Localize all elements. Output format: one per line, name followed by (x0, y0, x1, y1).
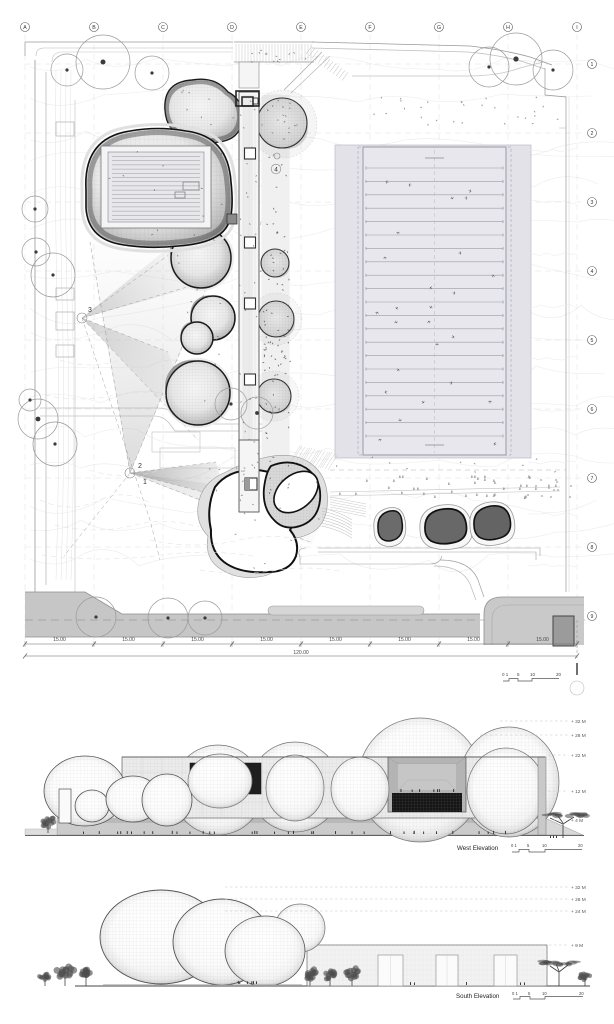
svg-text:15.00: 15.00 (122, 637, 135, 643)
svg-text:+ 28 M: + 28 M (571, 897, 586, 903)
svg-text:10: 10 (530, 672, 536, 677)
svg-text:4: 4 (274, 167, 278, 174)
svg-text:20: 20 (556, 672, 562, 677)
svg-text:5: 5 (591, 338, 594, 344)
svg-text:+ 22 M: + 22 M (571, 753, 586, 759)
svg-text:20: 20 (579, 991, 584, 996)
svg-text:0 1: 0 1 (512, 991, 518, 996)
svg-text:F: F (368, 25, 371, 31)
svg-text:C: C (161, 25, 165, 31)
svg-text:2: 2 (138, 463, 142, 470)
svg-text:South Elevation: South Elevation (456, 993, 500, 1000)
svg-text:B: B (92, 25, 96, 31)
svg-text:I: I (576, 25, 577, 31)
svg-text:+ 28 M: + 28 M (571, 733, 586, 739)
svg-text:+ 12 M: + 12 M (571, 789, 586, 795)
svg-text:10: 10 (542, 991, 547, 996)
svg-text:1: 1 (143, 479, 147, 486)
svg-text:+ 32 M: + 32 M (571, 885, 586, 891)
svg-text:+ 24 M: + 24 M (571, 909, 586, 915)
svg-text:120.00: 120.00 (293, 650, 309, 656)
svg-text:15.00: 15.00 (467, 637, 480, 643)
svg-text:15.00: 15.00 (536, 637, 549, 643)
svg-text:15.00: 15.00 (53, 637, 66, 643)
svg-text:0 1: 0 1 (511, 843, 517, 848)
svg-text:15.00: 15.00 (398, 637, 411, 643)
svg-text:10: 10 (542, 843, 547, 848)
svg-text:E: E (299, 25, 303, 31)
svg-text:West Elevation: West Elevation (457, 845, 499, 852)
svg-text:8: 8 (591, 545, 594, 551)
svg-text:D: D (230, 25, 234, 31)
svg-text:15.00: 15.00 (329, 637, 342, 643)
svg-text:H: H (506, 25, 510, 31)
svg-text:0 1: 0 1 (502, 672, 509, 677)
svg-text:6: 6 (591, 407, 594, 413)
svg-text:3: 3 (591, 200, 594, 206)
svg-text:A: A (23, 25, 27, 31)
svg-text:15.00: 15.00 (191, 637, 204, 643)
svg-text:20: 20 (578, 843, 583, 848)
svg-text:G: G (437, 25, 441, 31)
svg-text:4: 4 (591, 269, 594, 275)
svg-text:1: 1 (591, 62, 594, 68)
svg-text:+ 4 M: + 4 M (571, 818, 583, 824)
svg-text:2: 2 (591, 131, 594, 137)
svg-text:+ 32 M: + 32 M (571, 719, 586, 725)
svg-text:7: 7 (591, 476, 594, 482)
svg-text:9: 9 (591, 614, 594, 620)
svg-text:15.00: 15.00 (260, 637, 273, 643)
svg-text:+ 9 M: + 9 M (571, 943, 583, 949)
svg-text:3: 3 (88, 307, 92, 314)
